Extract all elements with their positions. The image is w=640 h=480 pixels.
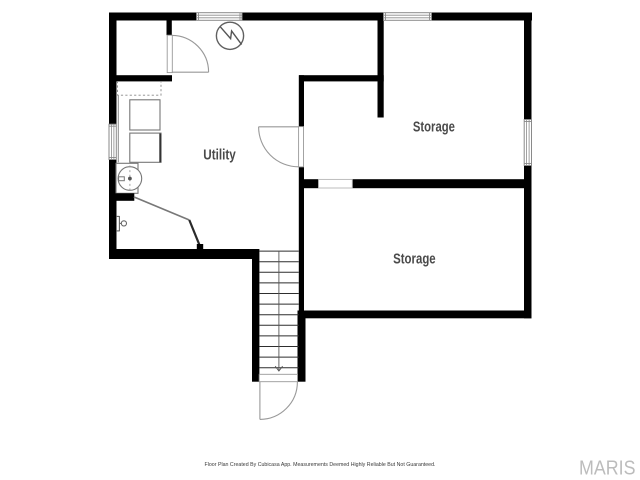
svg-text:Utility: Utility [203,147,236,164]
svg-text:Storage: Storage [413,119,455,136]
svg-text:Storage: Storage [393,251,436,268]
svg-text:Floor Plan Created By Cubicasa: Floor Plan Created By Cubicasa App. Meas… [205,462,436,468]
svg-text:MARIS: MARIS [579,457,636,480]
